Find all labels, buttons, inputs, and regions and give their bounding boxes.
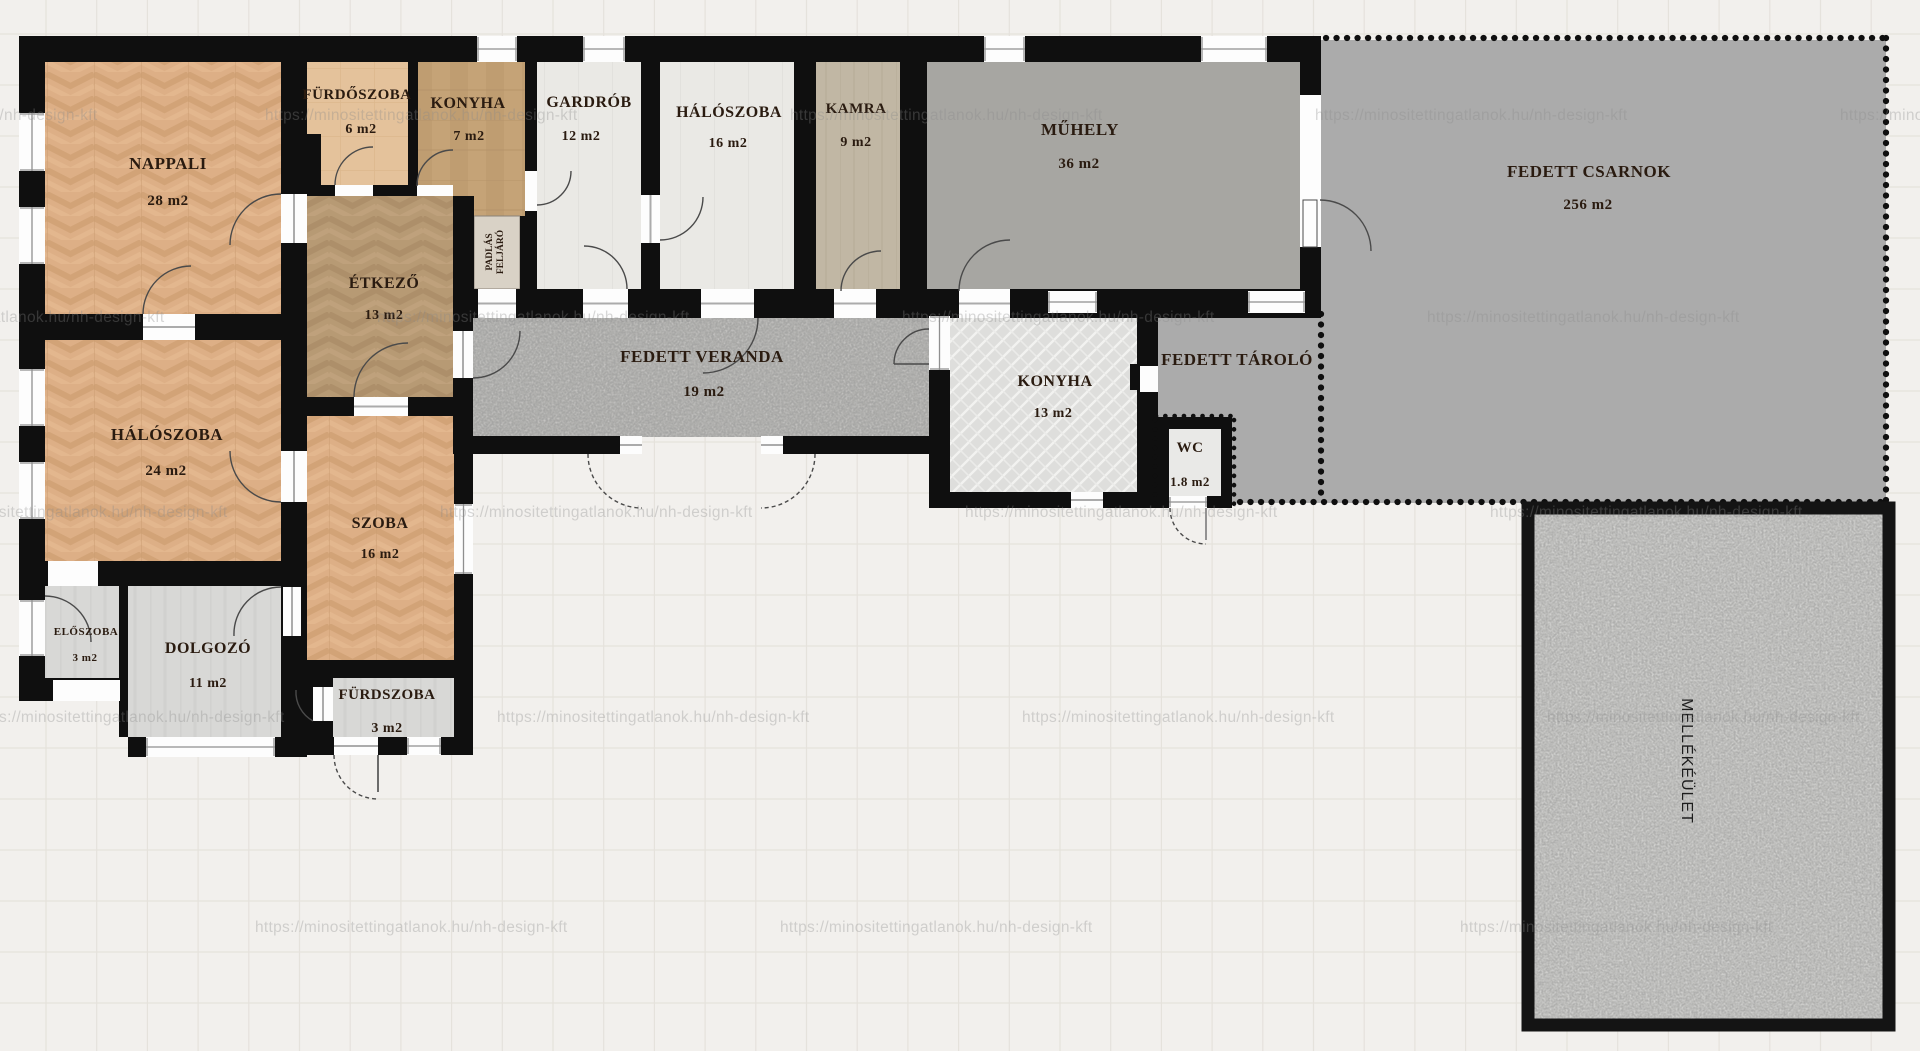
svg-text:24 m2: 24 m2 <box>145 463 186 479</box>
svg-text:ÉTKEZŐ: ÉTKEZŐ <box>349 273 420 292</box>
svg-text:https://minositettingatlanok.h: https://minositettingatlanok.hu/nh-desig… <box>0 709 285 726</box>
svg-text:https://minositettingatlanok.h: https://minositettingatlanok.hu/nh-desig… <box>265 107 578 124</box>
svg-text:PADLÁS: PADLÁS <box>483 233 495 270</box>
svg-text:https://minositettingatlanok.h: https://minositettingatlanok.hu/nh-desig… <box>440 504 753 521</box>
svg-text:ELŐSZOBA: ELŐSZOBA <box>54 626 119 638</box>
svg-text:7 m2: 7 m2 <box>453 129 484 144</box>
svg-text:https://minositettingatlanok.h: https://minositettingatlanok.hu/nh-desig… <box>0 504 228 521</box>
svg-text:16 m2: 16 m2 <box>709 136 748 151</box>
svg-text:256 m2: 256 m2 <box>1563 197 1612 213</box>
svg-text:36 m2: 36 m2 <box>1058 156 1099 172</box>
svg-text:https://minositettingatlanok.h: https://minositettingatlanok.hu/nh-desig… <box>1547 709 1860 726</box>
svg-text:FEDETT VERANDA: FEDETT VERANDA <box>620 347 784 366</box>
svg-text:https://minositettingatlanok.h: https://minositettingatlanok.hu/nh-desig… <box>902 309 1215 326</box>
svg-text:https://minositettingatlanok.h: https://minositettingatlanok.hu/nh-desig… <box>780 919 1093 936</box>
svg-text:6 m2: 6 m2 <box>345 122 376 137</box>
svg-text:https://minositettingatlanok.h: https://minositettingatlanok.hu/nh-desig… <box>377 309 690 326</box>
svg-text:https://minositettingatlanok.h: https://minositettingatlanok.hu/nh-desig… <box>1490 504 1803 521</box>
svg-text:1.8 m2: 1.8 m2 <box>1170 474 1210 489</box>
svg-text:DOLGOZÓ: DOLGOZÓ <box>165 638 251 657</box>
svg-text:9 m2: 9 m2 <box>840 135 871 150</box>
svg-text:11 m2: 11 m2 <box>189 676 227 691</box>
svg-text:NAPPALI: NAPPALI <box>129 154 207 173</box>
svg-text:FELJÁRÓ: FELJÁRÓ <box>494 230 506 274</box>
svg-text:https://minositettingatlanok.h: https://minositettingatlanok.hu/nh-desig… <box>1460 919 1773 936</box>
svg-text:https://minositettingatlanok.h: https://minositettingatlanok.hu/nh-desig… <box>1840 107 1920 124</box>
svg-text:https://minositettingatlanok.h: https://minositettingatlanok.hu/nh-desig… <box>0 309 165 326</box>
svg-text:https://minositettingatlanok.h: https://minositettingatlanok.hu/nh-desig… <box>255 919 568 936</box>
svg-text:https://minositettingatlanok.h: https://minositettingatlanok.hu/nh-desig… <box>1315 107 1628 124</box>
svg-text:3 m2: 3 m2 <box>371 721 402 736</box>
svg-text:SZOBA: SZOBA <box>352 515 409 532</box>
svg-text:28 m2: 28 m2 <box>147 193 188 209</box>
svg-text:https://minositettingatlanok.h: https://minositettingatlanok.hu/nh-desig… <box>965 504 1278 521</box>
svg-text:12 m2: 12 m2 <box>562 129 601 144</box>
svg-text:WC: WC <box>1177 440 1204 456</box>
svg-text:https://minositettingatlanok.h: https://minositettingatlanok.hu/nh-desig… <box>1427 309 1740 326</box>
svg-text:https://minositettingatlanok.h: https://minositettingatlanok.hu/nh-desig… <box>497 709 810 726</box>
svg-text:FEDETT CSARNOK: FEDETT CSARNOK <box>1507 162 1671 181</box>
svg-text:https://minositettingatlanok.h: https://minositettingatlanok.hu/nh-desig… <box>0 107 98 124</box>
svg-text:KONYHA: KONYHA <box>1018 373 1093 390</box>
svg-text:16 m2: 16 m2 <box>361 547 400 562</box>
svg-text:HÁLÓSZOBA: HÁLÓSZOBA <box>111 425 223 444</box>
svg-text:FEDETT TÁROLÓ: FEDETT TÁROLÓ <box>1161 350 1313 369</box>
svg-text:19 m2: 19 m2 <box>683 384 724 400</box>
svg-text:HÁLÓSZOBA: HÁLÓSZOBA <box>676 102 782 121</box>
svg-text:13 m2: 13 m2 <box>1034 406 1073 421</box>
svg-text:FÜRDŐSZOBA: FÜRDŐSZOBA <box>302 86 411 103</box>
svg-text:https://minositettingatlanok.h: https://minositettingatlanok.hu/nh-desig… <box>1022 709 1335 726</box>
svg-text:https://minositettingatlanok.h: https://minositettingatlanok.hu/nh-desig… <box>790 107 1103 124</box>
svg-text:3 m2: 3 m2 <box>73 652 98 664</box>
svg-text:FÜRDSZOBA: FÜRDSZOBA <box>338 686 435 703</box>
